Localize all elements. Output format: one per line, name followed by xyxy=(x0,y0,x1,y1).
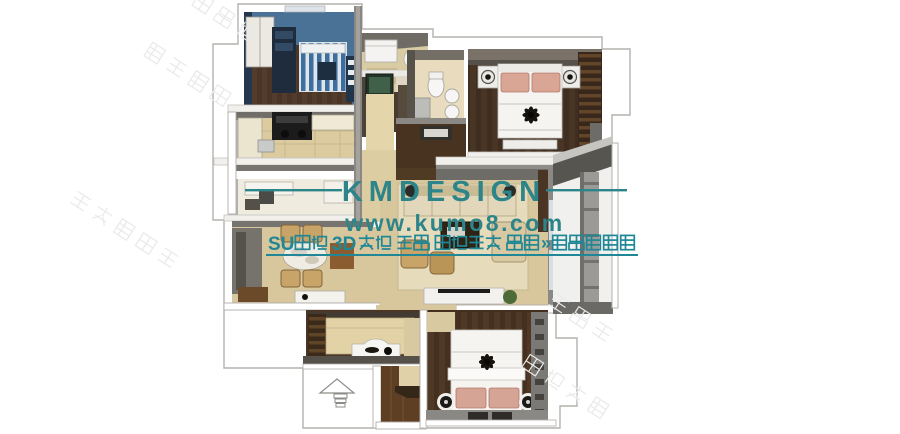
svg-text:»: » xyxy=(541,233,551,253)
svg-text:3D: 3D xyxy=(332,234,356,255)
svg-text:www.kumo8.com: www.kumo8.com xyxy=(344,210,565,236)
svg-text:SU: SU xyxy=(268,234,294,255)
svg-text:KMDESIGN: KMDESIGN xyxy=(342,176,546,208)
